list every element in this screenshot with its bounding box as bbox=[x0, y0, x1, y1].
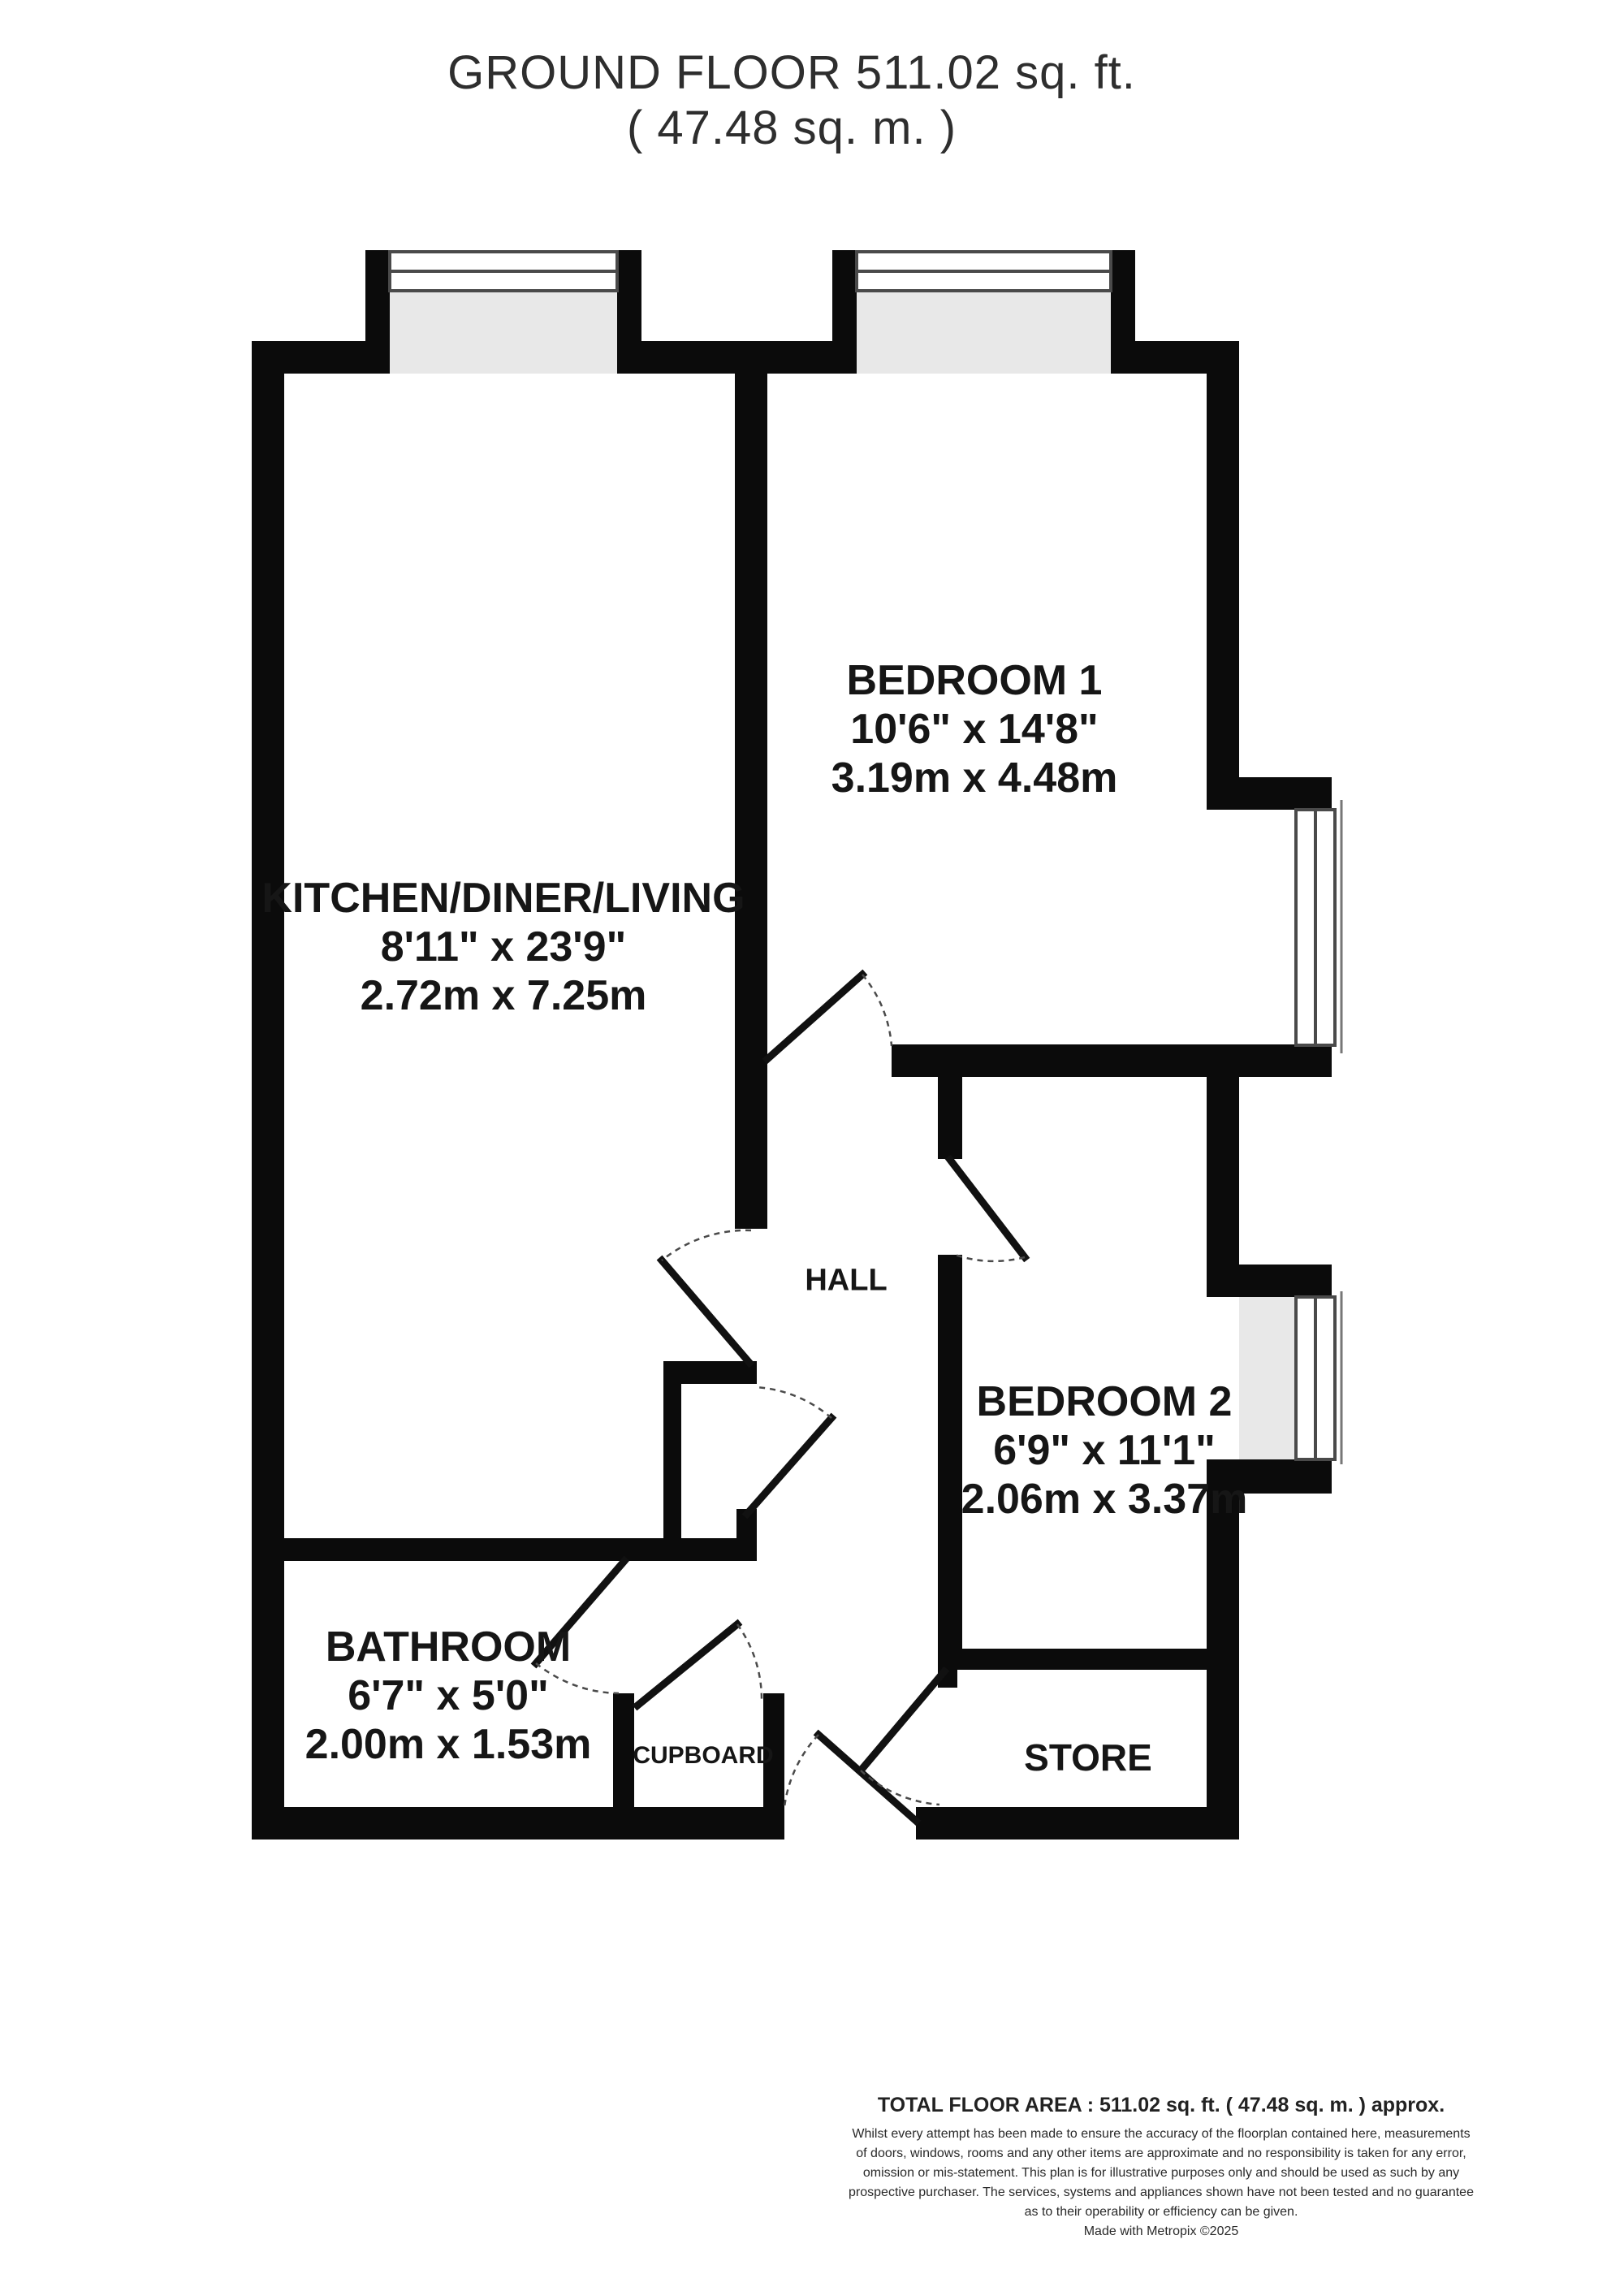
kitchen-hall-divider-wall bbox=[735, 367, 767, 1229]
bedroom2-door-arc bbox=[955, 1255, 1025, 1261]
cupboard-door-arc bbox=[737, 1624, 762, 1699]
top-right-window-jamb-right bbox=[1111, 250, 1135, 374]
disclaimer-block: Whilst every attempt has been made to en… bbox=[849, 2125, 1474, 2242]
top-left-window-jamb-left bbox=[365, 250, 390, 374]
cupboard-label: CUPBOARD bbox=[633, 1742, 773, 1770]
bathroom-label: BATHROOM 6'7" x 5'0" 2.00m x 1.53m bbox=[305, 1623, 592, 1769]
bedroom1-bottom-wall bbox=[892, 1044, 1218, 1077]
disclaimer-line-3: omission or mis-statement. This plan is … bbox=[849, 2164, 1474, 2183]
kitchen-size-metric: 2.72m x 7.25m bbox=[261, 971, 745, 1020]
bedroom1-label: BEDROOM 1 10'6" x 14'8" 3.19m x 4.48m bbox=[831, 656, 1118, 802]
floorplan-page: GROUND FLOOR 511.02 sq. ft. ( 47.48 sq. … bbox=[0, 0, 1624, 2274]
bedroom2-bay-top-wall bbox=[1207, 1265, 1332, 1297]
top-left-window-jamb-right bbox=[617, 250, 641, 374]
bedroom1-name: BEDROOM 1 bbox=[831, 656, 1118, 705]
hall-closet-left-wall bbox=[663, 1361, 681, 1538]
top-right-window-jamb-left bbox=[832, 250, 857, 374]
recess-top-right-window bbox=[857, 289, 1111, 374]
recess-bedroom2-bay bbox=[1239, 1297, 1298, 1459]
left-wall bbox=[252, 341, 284, 1840]
credit-line: Made with Metropix ©2025 bbox=[849, 2222, 1474, 2242]
disclaimer-line-4: prospective purchaser. The services, sys… bbox=[849, 2183, 1474, 2203]
hall-closet-door-arc bbox=[755, 1387, 831, 1418]
store-label: STORE bbox=[1024, 1736, 1152, 1779]
floorplan-drawing bbox=[0, 0, 1624, 2274]
bathroom-size-imperial: 6'7" x 5'0" bbox=[305, 1671, 592, 1720]
plan-title: GROUND FLOOR 511.02 sq. ft. ( 47.48 sq. … bbox=[447, 45, 1136, 156]
top-wall-left-segment bbox=[252, 341, 369, 374]
bedroom1-door-arc bbox=[862, 975, 892, 1046]
bedroom2-name: BEDROOM 2 bbox=[961, 1377, 1248, 1426]
right-wall-middle bbox=[1207, 1077, 1239, 1265]
walls bbox=[252, 250, 1332, 1840]
entrance-door-arc bbox=[784, 1735, 818, 1807]
right-wall-upper bbox=[1207, 341, 1239, 777]
bedroom1-size-metric: 3.19m x 4.48m bbox=[831, 754, 1118, 802]
bottom-wall-left-segment bbox=[252, 1807, 784, 1840]
plan-title-line2: ( 47.48 sq. m. ) bbox=[447, 101, 1136, 156]
bedroom2-left-wall-upper bbox=[938, 1077, 962, 1159]
bedroom2-door-leaf bbox=[950, 1160, 1025, 1257]
disclaimer-line-2: of doors, windows, rooms and any other i… bbox=[849, 2144, 1474, 2164]
kitchen-door-arc bbox=[662, 1230, 751, 1260]
bedroom2-size-metric: 2.06m x 3.37m bbox=[961, 1475, 1248, 1524]
store-top-wall bbox=[938, 1649, 1239, 1670]
hall-label: HALL bbox=[805, 1264, 887, 1299]
store-door-arc bbox=[861, 1770, 939, 1805]
bedroom1-door-leaf bbox=[767, 975, 862, 1059]
kitchen-door-leaf bbox=[662, 1260, 749, 1363]
bedroom1-bay-top-wall bbox=[1207, 777, 1332, 810]
kitchen-name: KITCHEN/DINER/LIVING bbox=[261, 874, 745, 923]
disclaimer-line-5: as to their operability or efficiency ca… bbox=[849, 2203, 1474, 2222]
bottom-wall-right-segment bbox=[916, 1807, 1239, 1840]
recess-top-left-window bbox=[390, 289, 617, 374]
bedroom2-size-imperial: 6'9" x 11'1" bbox=[961, 1426, 1248, 1475]
bathroom-top-wall bbox=[252, 1538, 757, 1561]
bedroom1-size-imperial: 10'6" x 14'8" bbox=[831, 705, 1118, 754]
kitchen-size-imperial: 8'11" x 23'9" bbox=[261, 923, 745, 971]
bedroom2-left-wall-lower bbox=[938, 1255, 962, 1649]
entrance-door-leaf bbox=[818, 1735, 916, 1821]
cupboard-door-leaf bbox=[637, 1624, 737, 1705]
cupboard-left-wall bbox=[613, 1693, 634, 1807]
bedroom1-bay-bottom-wall bbox=[1218, 1044, 1332, 1077]
bathroom-size-metric: 2.00m x 1.53m bbox=[305, 1720, 592, 1769]
disclaimer-line-1: Whilst every attempt has been made to en… bbox=[849, 2125, 1474, 2144]
bathroom-name: BATHROOM bbox=[305, 1623, 592, 1671]
store-door-leaf bbox=[861, 1671, 944, 1770]
kitchen-label: KITCHEN/DINER/LIVING 8'11" x 23'9" 2.72m… bbox=[261, 874, 745, 1020]
bedroom2-label: BEDROOM 2 6'9" x 11'1" 2.06m x 3.37m bbox=[961, 1377, 1248, 1524]
total-floor-area: TOTAL FLOOR AREA : 511.02 sq. ft. ( 47.4… bbox=[878, 2094, 1445, 2117]
plan-title-line1: GROUND FLOOR 511.02 sq. ft. bbox=[447, 45, 1136, 101]
hall-closet-door-leaf bbox=[747, 1418, 831, 1514]
